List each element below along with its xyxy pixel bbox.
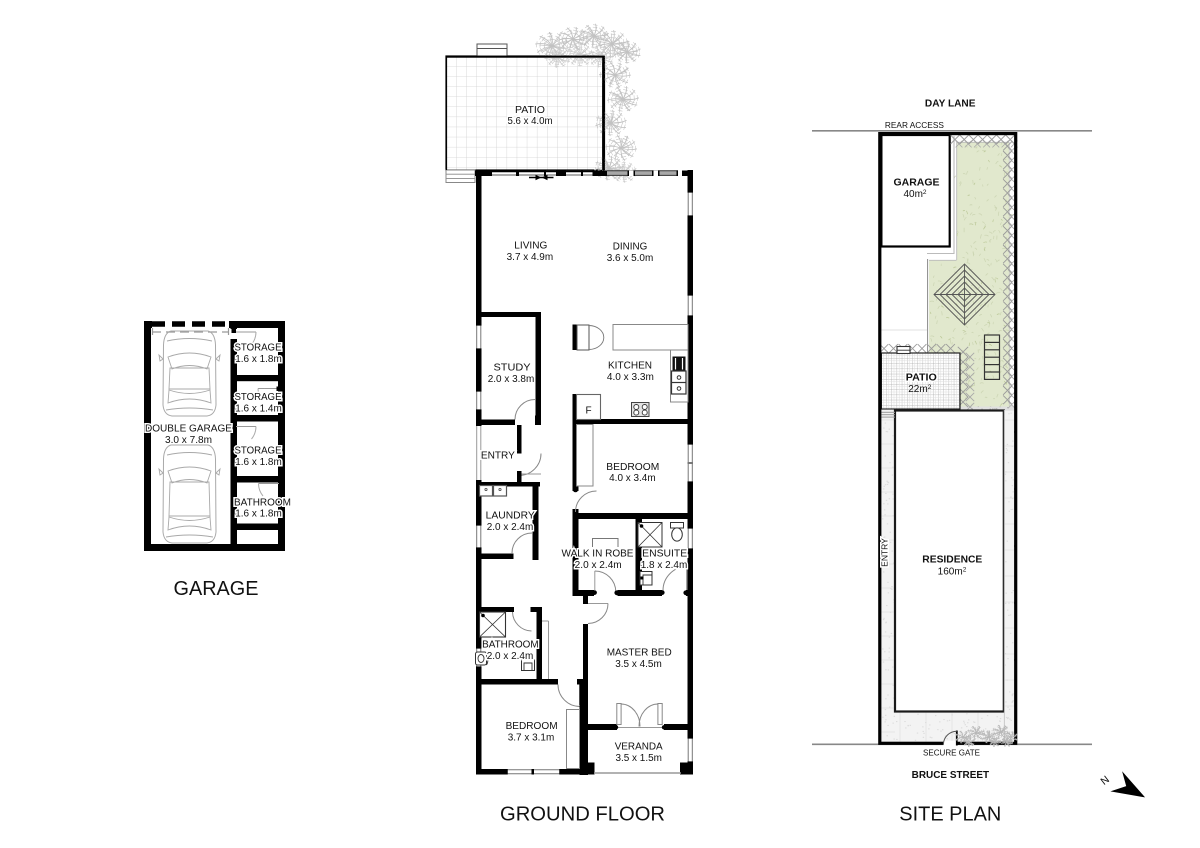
svg-text:ENTRY: ENTRY: [481, 450, 515, 461]
svg-text:ENTRY: ENTRY: [880, 538, 890, 567]
svg-text:SECURE GATE: SECURE GATE: [923, 748, 980, 758]
svg-text:PATIO: PATIO: [906, 373, 937, 384]
svg-text:WALK IN ROBE: WALK IN ROBE: [562, 549, 634, 560]
svg-text:3.0 x 7.8m: 3.0 x 7.8m: [165, 435, 212, 446]
svg-text:BRUCE STREET: BRUCE STREET: [912, 770, 990, 781]
svg-text:SITE PLAN: SITE PLAN: [899, 804, 1001, 826]
svg-text:LIVING: LIVING: [514, 241, 547, 252]
svg-text:BATHROOM: BATHROOM: [482, 640, 539, 651]
svg-text:3.7 x 4.9m: 3.7 x 4.9m: [507, 252, 554, 263]
svg-text:BEDROOM: BEDROOM: [606, 462, 659, 473]
svg-text:LAUNDRY: LAUNDRY: [486, 511, 535, 522]
svg-text:DOUBLE GARAGE: DOUBLE GARAGE: [145, 424, 232, 435]
svg-text:GARAGE: GARAGE: [174, 578, 259, 600]
svg-text:1.8 x 2.4m: 1.8 x 2.4m: [641, 560, 688, 571]
svg-text:STORAGE: STORAGE: [235, 446, 282, 457]
svg-text:RESIDENCE: RESIDENCE: [922, 555, 982, 566]
svg-text:3.5 x 4.5m: 3.5 x 4.5m: [615, 659, 662, 670]
svg-text:KITCHEN: KITCHEN: [608, 361, 652, 372]
svg-text:160m2: 160m2: [938, 566, 967, 577]
svg-text:2.0 x 2.4m: 2.0 x 2.4m: [487, 522, 534, 533]
svg-text:VERANDA: VERANDA: [615, 742, 663, 753]
svg-text:DINING: DINING: [613, 242, 648, 253]
svg-text:3.7 x 3.1m: 3.7 x 3.1m: [508, 732, 555, 743]
svg-text:1.6 x 1.4m: 1.6 x 1.4m: [235, 404, 282, 415]
svg-text:GROUND FLOOR: GROUND FLOOR: [500, 804, 665, 826]
svg-text:GARAGE: GARAGE: [894, 177, 940, 188]
svg-text:PATIO: PATIO: [515, 105, 545, 116]
svg-text:2.0 x 2.4m: 2.0 x 2.4m: [487, 651, 534, 662]
svg-text:4.0 x 3.4m: 4.0 x 3.4m: [609, 473, 656, 484]
svg-text:STORAGE: STORAGE: [235, 343, 282, 354]
svg-text:3.6 x 5.0m: 3.6 x 5.0m: [607, 253, 654, 264]
svg-text:3.5 x 1.5m: 3.5 x 1.5m: [615, 753, 662, 764]
svg-text:MASTER BED: MASTER BED: [607, 648, 672, 659]
svg-text:2.0 x 3.8m: 2.0 x 3.8m: [488, 374, 535, 385]
svg-text:4.0 x 3.3m: 4.0 x 3.3m: [607, 372, 654, 383]
svg-text:STUDY: STUDY: [494, 363, 531, 374]
svg-text:ENSUITE: ENSUITE: [642, 549, 687, 560]
svg-text:1.6 x 1.8m: 1.6 x 1.8m: [235, 509, 282, 520]
svg-text:1.6 x 1.8m: 1.6 x 1.8m: [235, 457, 282, 468]
svg-text:BATHROOM: BATHROOM: [234, 498, 291, 509]
svg-text:1.6 x 1.8m: 1.6 x 1.8m: [235, 354, 282, 365]
svg-text:BEDROOM: BEDROOM: [506, 721, 558, 732]
svg-text:2.0 x 2.4m: 2.0 x 2.4m: [575, 560, 622, 571]
svg-text:5.6 x 4.0m: 5.6 x 4.0m: [508, 116, 553, 127]
svg-text:REAR ACCESS: REAR ACCESS: [885, 120, 944, 130]
svg-text:DAY LANE: DAY LANE: [925, 99, 976, 110]
svg-text:F: F: [585, 406, 591, 417]
svg-text:STORAGE: STORAGE: [235, 392, 282, 403]
